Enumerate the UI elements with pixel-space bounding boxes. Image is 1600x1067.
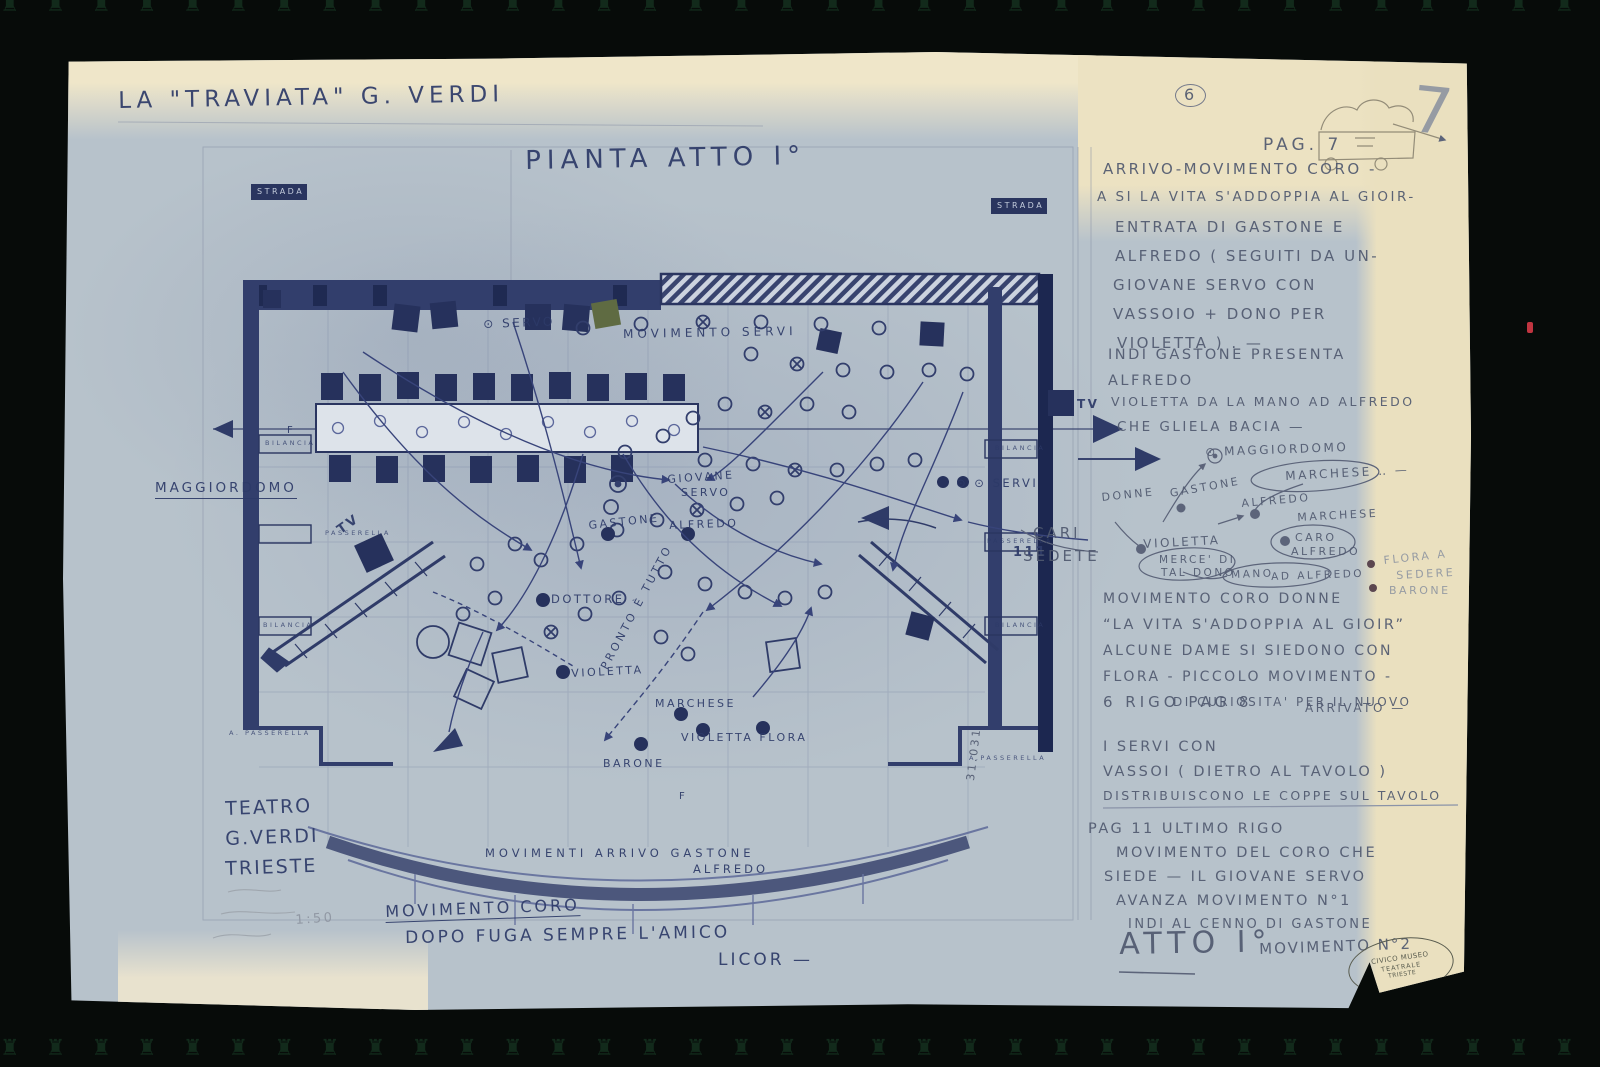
note-line: SIEDE — IL GIOVANE SERVO — [1104, 870, 1367, 885]
background-pattern-top: ♜♜♜♜♜♜♜♜♜♜♜♜♜♜♜♜♜♜♜♜♜♜♜♜♜♜♜♜♜♜♜♜♜♜♜♜ — [0, 0, 1600, 17]
note-line: CHE GLIELA BACIA — — [1117, 421, 1305, 435]
note-line: ARRIVO-MOVIMENTO CORO - — [1103, 162, 1377, 177]
note-line: DI CURIOSITA' PER IL NUOVO — [1173, 696, 1411, 708]
note-line: I SERVI CON — [1103, 740, 1218, 755]
red-mark — [1527, 322, 1533, 333]
note-line: AVANZA MOVIMENTO N°1 — [1116, 894, 1352, 909]
note-line: VIOLETTA DA LA MANO AD ALFREDO — [1111, 396, 1415, 409]
note-line: FLORA - PICCOLO MOVIMENTO - — [1103, 670, 1393, 684]
note-line: INDI AL CENNO DI GASTONE — [1128, 918, 1372, 931]
note-line: A SI LA VITA S'ADDOPPIA AL GIOIR- — [1097, 191, 1416, 205]
note-line: DISTRIBUISCONO LE COPPE SUL TAVOLO — [1103, 790, 1442, 803]
note-line: PAG 11 ULTIMO RIGO — [1088, 822, 1285, 837]
scan-background: ♜♜♜♜♜♜♜♜♜♜♜♜♜♜♜♜♜♜♜♜♜♜♜♜♜♜♜♜♜♜♜♜♜♜♜♜ ♜♜♜… — [0, 0, 1600, 1067]
note-line: ALFREDO ( SEGUITI DA UN- — [1115, 249, 1379, 264]
scanned-blueprint-page: LA "TRAVIATA" G. VERDIPIANTA ATTO I°STRA… — [63, 52, 1471, 1010]
note-line: INDI GASTONE PRESENTA — [1108, 348, 1346, 363]
note-line: VASSOIO + DONO PER — [1113, 307, 1327, 322]
note-line: VASSOI ( DIETRO AL TAVOLO ) — [1103, 765, 1388, 780]
note-line: “LA VITA S'ADDOPPIA AL GIOIR” — [1103, 618, 1406, 633]
note-line: ENTRATA DI GASTONE E — [1115, 220, 1345, 235]
note-line: MOVIMENTO DEL CORO CHE — [1116, 846, 1377, 861]
background-pattern-bottom: ♜♜♜♜♜♜♜♜♜♜♜♜♜♜♜♜♜♜♜♜♜♜♜♜♜♜♜♜♜♜♜♜♜♜♜♜ — [0, 1036, 1600, 1061]
note-line: GIOVANE SERVO CON — [1113, 278, 1317, 293]
handwritten-notes-layer: ARRIVO-MOVIMENTO CORO -A SI LA VITA S'AD… — [63, 52, 1471, 1010]
note-line: ALCUNE DAME SI SIEDONO CON — [1103, 644, 1393, 658]
note-line: ALFREDO — [1108, 374, 1194, 389]
note-line: MOVIMENTO CORO DONNE — [1103, 592, 1343, 606]
